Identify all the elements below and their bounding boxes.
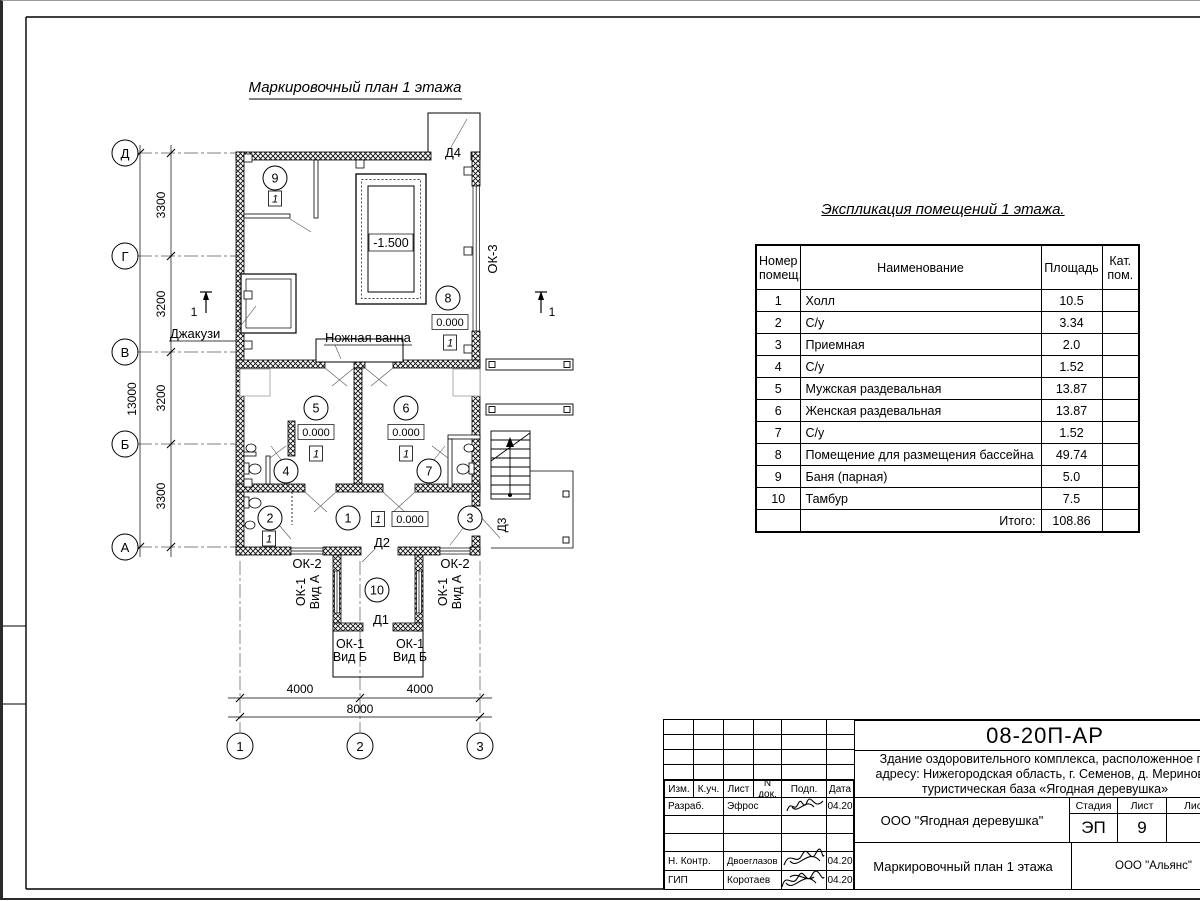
title-block: Изм. К.уч. Лист N док. Подп. Дата Разраб… (663, 719, 1200, 889)
tb-row4-role: ГИП (664, 870, 724, 890)
svg-text:-1.500: -1.500 (373, 236, 408, 250)
svg-text:1: 1 (266, 534, 272, 546)
svg-text:3200: 3200 (154, 290, 168, 317)
svg-text:1: 1 (345, 512, 352, 526)
svg-text:Б: Б (121, 437, 130, 452)
drawing-sheet: { "plan": { "title": "Маркировочный план… (0, 0, 1200, 900)
svg-text:В: В (121, 345, 130, 360)
tb-row4-sign (781, 870, 827, 890)
title-block-empty-grid (664, 720, 854, 780)
tb-object-description: Здание оздоровительного комплекса, распо… (854, 750, 1200, 798)
tb-sheets-value (1166, 813, 1200, 843)
window-ok1a-left-sub: Вид А (308, 574, 322, 609)
tb-row3-role: Н. Контр. (664, 851, 724, 871)
total-label: Итого: (800, 510, 1041, 533)
tb-object-line1: Здание оздоровительного комплекса, распо… (880, 752, 1200, 767)
window-ok1a-left-label: ОК-1 (294, 578, 308, 606)
tb-col-izm: Изм. (664, 780, 694, 798)
window-ok3-label: ОК-3 (485, 244, 500, 273)
svg-text:2: 2 (356, 739, 363, 754)
svg-text:0.000: 0.000 (302, 427, 330, 439)
tb-col-ndok: N док. (753, 780, 782, 798)
tb-row0-sign (781, 797, 827, 816)
door-d1-label: Д1 (373, 612, 389, 627)
tb-object-line2: адресу: Нижегородская область, г. Семено… (876, 767, 1200, 782)
tb-row0-name: Эфрос (723, 797, 782, 816)
svg-text:3: 3 (467, 512, 474, 526)
col-header-name: Наименование (800, 245, 1041, 290)
section-label-left: 1 (191, 305, 198, 319)
svg-text:8000: 8000 (347, 702, 374, 716)
table-row: 2С/у3.34 (756, 312, 1139, 334)
col-header-num: Номер помещ. (756, 245, 800, 290)
tb-row4-name: Коротаев (723, 870, 782, 890)
col-header-area: Площадь (1041, 245, 1102, 290)
tb-object-line3: туристическая база «Ягодная деревушка» (922, 782, 1168, 797)
door-d2-label: Д2 (374, 535, 390, 550)
explication-header-row: Номер помещ. Наименование Площадь Кат. п… (756, 245, 1139, 290)
table-row: 9Баня (парная)5.0 (756, 466, 1139, 488)
table-row: 10Тамбур7.5 (756, 488, 1139, 510)
window-ok1b-left-sub: Вид Б (333, 650, 367, 664)
svg-text:3200: 3200 (154, 384, 168, 411)
axis-bubbles: Д Г В Б А 1 2 3 (112, 140, 493, 759)
foot-bath-label: Ножная ванна (325, 330, 412, 345)
tb-contractor: ООО "Альянс" (1071, 842, 1200, 890)
window-ok1b-left-label: ОК-1 (336, 637, 364, 651)
svg-text:1: 1 (375, 514, 381, 526)
explication-table: Номер помещ. Наименование Площадь Кат. п… (755, 244, 1140, 533)
tb-stage-value: ЭП (1069, 813, 1118, 843)
window-ok1b-right-label: ОК-1 (396, 637, 424, 651)
tb-stage-label: Стадия (1069, 797, 1118, 814)
tb-sheet-label: Лист (1117, 797, 1167, 814)
tb-col-list: Лист (723, 780, 754, 798)
section-label-right: 1 (549, 305, 556, 319)
svg-text:5: 5 (313, 402, 320, 416)
svg-text:4000: 4000 (287, 682, 314, 696)
window-ok1a-right-sub: Вид А (450, 574, 464, 609)
svg-text:3300: 3300 (154, 191, 168, 218)
table-row: 7С/у1.52 (756, 422, 1139, 444)
tb-org: ООО "Ягодная деревушка" (854, 797, 1070, 843)
tb-doc-number: 08-20П-АР (854, 720, 1200, 751)
svg-text:А: А (121, 540, 130, 555)
svg-text:1: 1 (313, 449, 319, 461)
tb-row3-name: Двоеглазов (723, 851, 782, 871)
svg-text:0.000: 0.000 (392, 427, 420, 439)
svg-text:13000: 13000 (125, 382, 139, 416)
plan-title: Маркировочный план 1 этажа (249, 79, 462, 96)
svg-text:8: 8 (445, 292, 452, 306)
svg-text:1: 1 (236, 739, 243, 754)
tb-row3-date: 04.20 (826, 851, 854, 871)
svg-text:10: 10 (370, 584, 384, 598)
svg-text:1: 1 (272, 194, 278, 206)
jacuzzi-label: Джакузи (170, 326, 220, 341)
svg-text:0.000: 0.000 (436, 317, 464, 329)
room-bubbles: 1 2 3 4 5 6 7 8 9 10 (258, 166, 482, 602)
table-row: 6Женская раздевальная13.87 (756, 400, 1139, 422)
window-ok1a-right-label: ОК-1 (436, 578, 450, 606)
svg-text:0.000: 0.000 (396, 514, 424, 526)
svg-text:4000: 4000 (407, 682, 434, 696)
tb-row0-role: Разраб. (664, 797, 724, 816)
table-total-row: Итого: 108.86 (756, 510, 1139, 533)
level-marks: 0.000 0.000 0.000 0.000 -1.500 (298, 234, 468, 527)
svg-text:9: 9 (272, 172, 279, 186)
table-row: 5Мужская раздевальная13.87 (756, 378, 1139, 400)
door-d4-label: Д4 (445, 145, 461, 160)
window-ok2-left-label: ОК-2 (292, 556, 321, 571)
table-row: 3Приемная2.0 (756, 334, 1139, 356)
door-d3-label: Д3 (495, 517, 509, 532)
tb-sheets-label: Листов (1166, 797, 1200, 814)
window-ok2-right-label: ОК-2 (440, 556, 469, 571)
window-ok1b-right-sub: Вид Б (393, 650, 427, 664)
explication-title: Экспликация помещений 1 этажа. (703, 201, 1183, 218)
col-header-cat: Кат. пом. (1102, 245, 1139, 290)
svg-text:2: 2 (267, 512, 274, 526)
svg-text:7: 7 (426, 465, 433, 479)
tb-col-podp: Подп. (781, 780, 827, 798)
svg-text:3: 3 (476, 739, 483, 754)
tb-row0-date: 04.20 (826, 797, 854, 816)
axis-lines (138, 153, 480, 732)
svg-text:Д: Д (121, 146, 130, 161)
tb-row4-date: 04.20 (826, 870, 854, 890)
svg-text:1: 1 (447, 338, 453, 350)
total-value: 108.86 (1041, 510, 1102, 533)
svg-text:4: 4 (283, 465, 290, 479)
svg-text:1: 1 (403, 449, 409, 461)
tb-col-kuch: К.уч. (693, 780, 724, 798)
table-row: 1Холл10.5 (756, 290, 1139, 312)
svg-text:3300: 3300 (154, 482, 168, 509)
tb-sheet-title: Маркировочный план 1 этажа (854, 842, 1072, 890)
svg-text:6: 6 (403, 402, 410, 416)
tb-col-data: Дата (826, 780, 854, 798)
svg-text:Г: Г (121, 249, 128, 264)
tb-sheet-value: 9 (1117, 813, 1167, 843)
table-row: 8Помещение для размещения бассейна49.74 (756, 444, 1139, 466)
tb-row3-sign (781, 851, 827, 871)
table-row: 4С/у1.52 (756, 356, 1139, 378)
